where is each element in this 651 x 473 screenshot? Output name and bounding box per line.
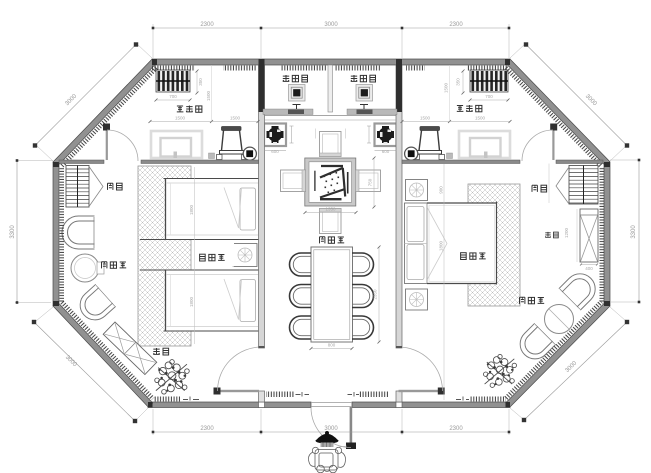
- svg-text:2300: 2300: [449, 426, 463, 432]
- svg-text:350: 350: [456, 78, 461, 86]
- svg-text:2300: 2300: [449, 22, 463, 28]
- svg-text:600: 600: [382, 149, 390, 154]
- svg-text:400: 400: [585, 266, 593, 271]
- svg-text:1500: 1500: [206, 90, 211, 101]
- svg-text:3000: 3000: [324, 22, 338, 28]
- svg-text:600: 600: [271, 149, 279, 154]
- svg-text:350: 350: [198, 78, 203, 86]
- svg-text:1500: 1500: [230, 116, 241, 121]
- svg-text:700: 700: [169, 94, 177, 99]
- svg-text:3300: 3300: [10, 225, 16, 239]
- svg-text:1800: 1800: [189, 204, 194, 215]
- svg-text:1800: 1800: [189, 296, 194, 307]
- svg-text:2350: 2350: [373, 289, 378, 300]
- svg-text:2300: 2300: [200, 22, 214, 28]
- svg-text:1800: 1800: [439, 240, 444, 251]
- svg-text:700: 700: [485, 94, 493, 99]
- svg-text:1500: 1500: [420, 116, 431, 121]
- svg-text:1500: 1500: [175, 116, 186, 121]
- svg-text:1350: 1350: [325, 207, 336, 212]
- svg-text:3300: 3300: [631, 225, 637, 239]
- svg-text:750: 750: [368, 178, 373, 186]
- svg-text:800: 800: [328, 343, 336, 348]
- svg-text:900: 900: [439, 186, 444, 194]
- svg-text:1500: 1500: [475, 116, 486, 121]
- svg-text:2300: 2300: [200, 426, 214, 432]
- svg-text:1500: 1500: [444, 82, 449, 93]
- svg-text:1200: 1200: [564, 227, 569, 238]
